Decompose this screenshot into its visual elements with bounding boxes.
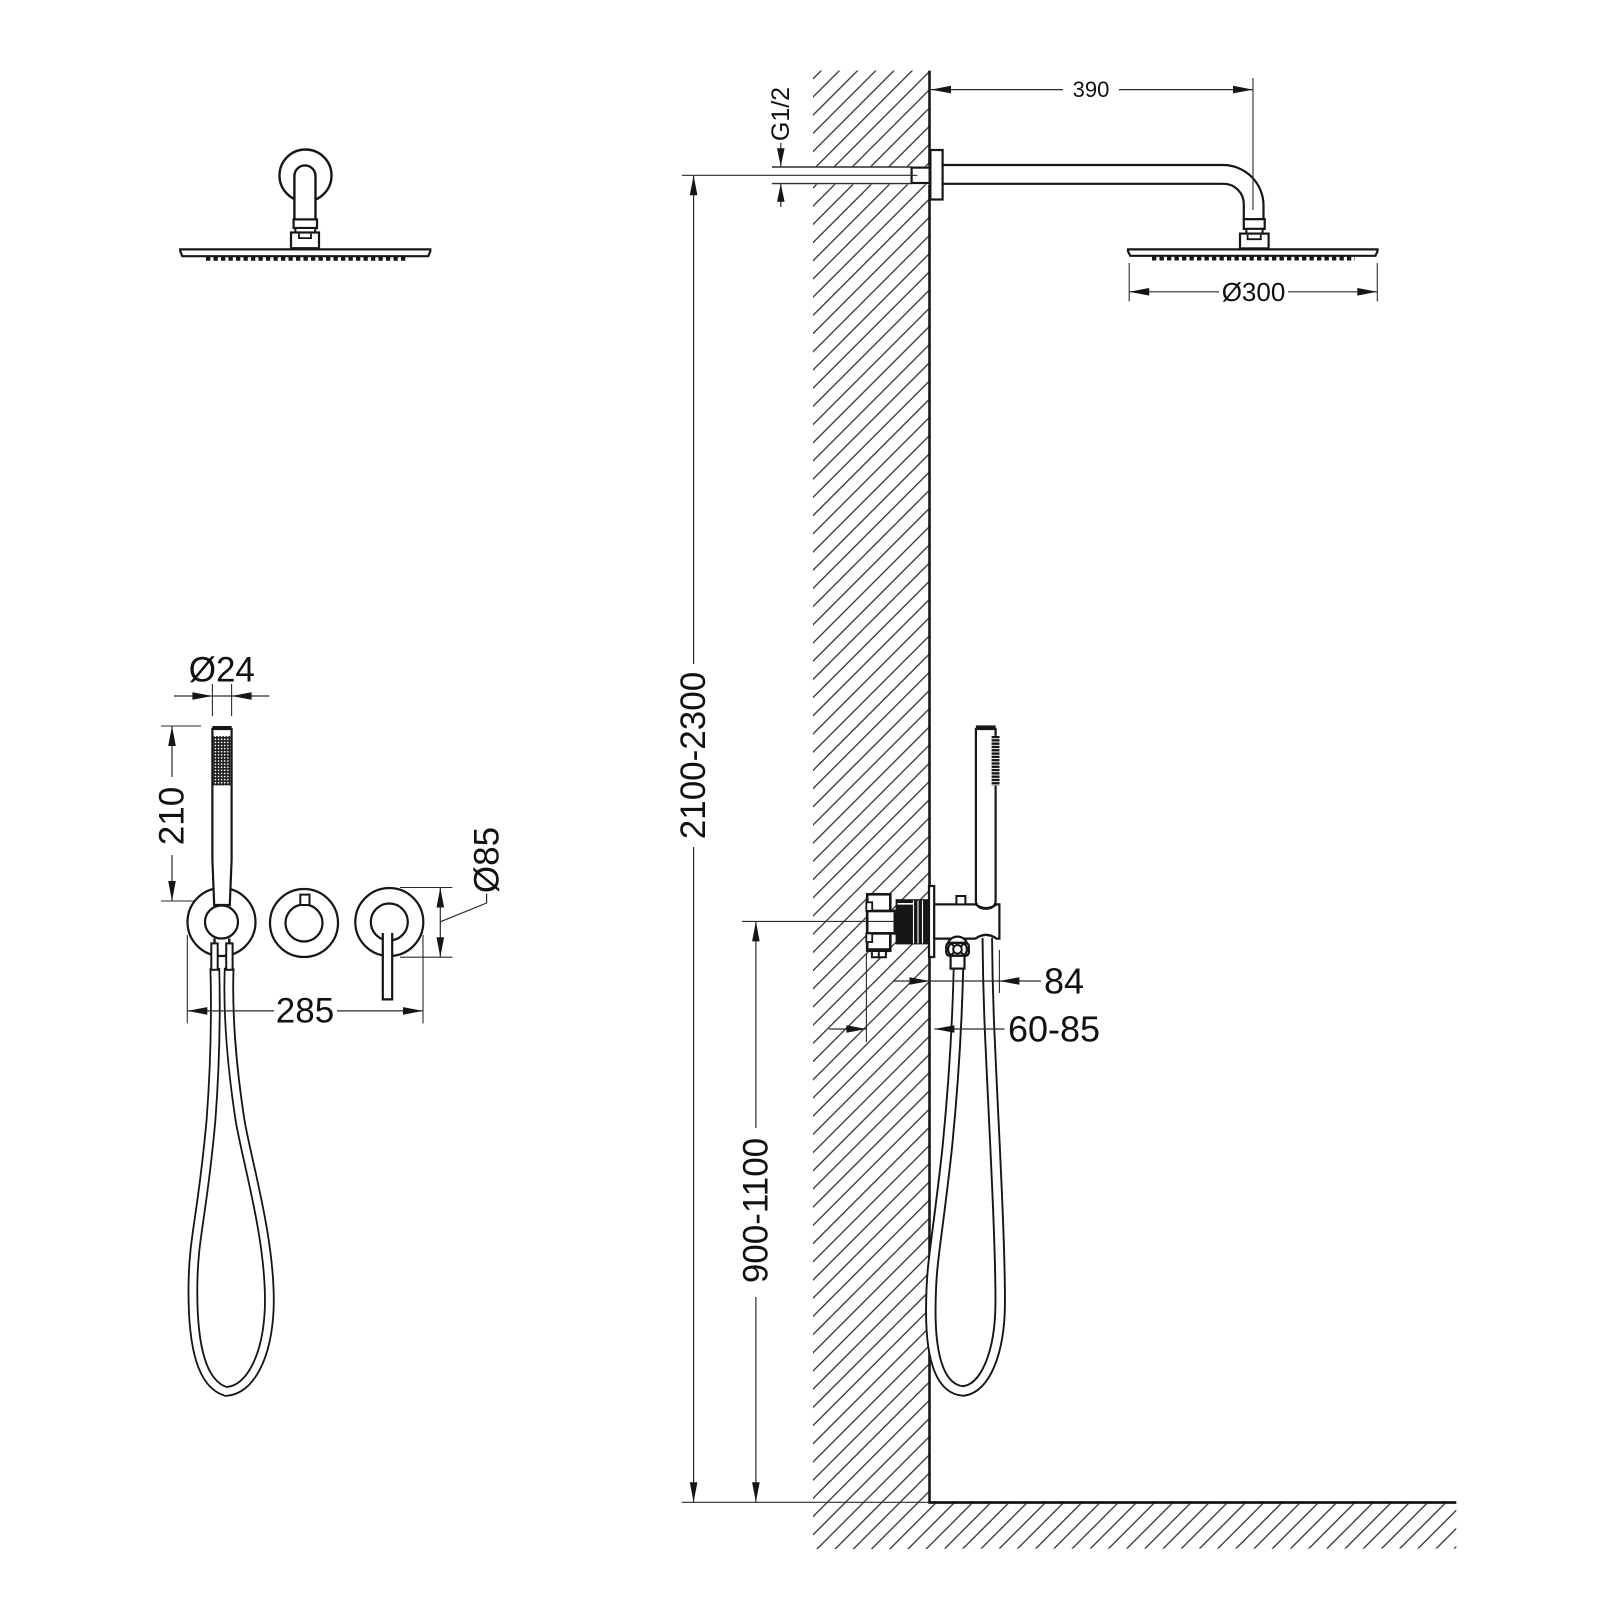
svg-text:G1/2: G1/2 [767, 87, 795, 141]
svg-text:Ø300: Ø300 [1222, 277, 1286, 307]
svg-text:84: 84 [1044, 961, 1084, 1002]
svg-text:Ø85: Ø85 [467, 827, 506, 893]
svg-text:60-85: 60-85 [1008, 1009, 1100, 1050]
svg-text:390: 390 [1073, 77, 1110, 102]
svg-text:900-1100: 900-1100 [736, 1138, 775, 1283]
svg-text:210: 210 [153, 787, 192, 845]
svg-text:2100-2300: 2100-2300 [674, 672, 713, 839]
svg-text:285: 285 [276, 991, 334, 1030]
svg-text:Ø24: Ø24 [189, 651, 255, 690]
